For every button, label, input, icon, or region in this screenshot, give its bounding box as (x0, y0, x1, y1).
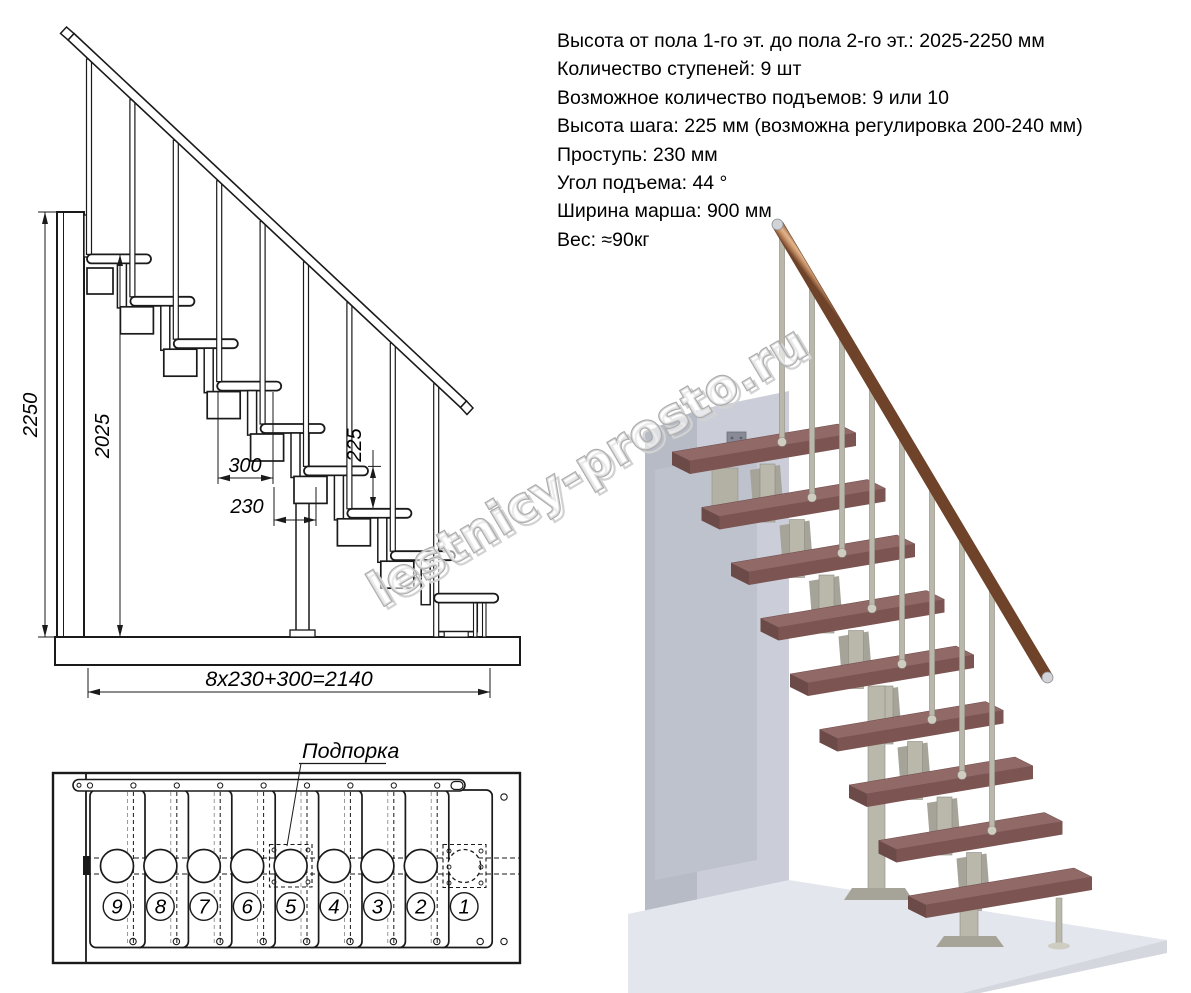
baluster (87, 59, 92, 254)
module-tube (161, 306, 170, 351)
dim-tread-depth: 300 (228, 455, 261, 477)
module-tube (291, 433, 300, 478)
specs-block: Высота от пола 1-го эт. до пола 2-го эт.… (557, 27, 1083, 254)
module-leg (474, 602, 478, 637)
render-bottom-post (960, 908, 978, 938)
spec-line-height-range: Высота от пола 1-го эт. до пола 2-го эт.… (557, 27, 1083, 55)
render-baluster (899, 434, 904, 668)
plan-step-number: 5 (285, 896, 297, 919)
tread (434, 594, 498, 603)
spec-line-rise-count: Возможное количество подъемов: 9 или 10 (557, 84, 1083, 112)
baluster (304, 262, 309, 466)
render-baluster (869, 383, 874, 613)
spec-line-step-count: Количество ступеней: 9 шт (557, 55, 1083, 83)
plan-left-notch (83, 856, 90, 875)
baluster (173, 140, 178, 339)
dim-total-height: 2250 (20, 393, 42, 439)
tread (304, 466, 368, 475)
baluster (130, 100, 135, 297)
tread (130, 297, 194, 306)
plan-handrail-bar (73, 780, 465, 792)
spec-line-weight: Вес: ≈90кг (557, 226, 1083, 254)
spec-line-width: Ширина марша: 900 мм (557, 197, 1083, 225)
dim-step-rise: 225 (344, 427, 366, 462)
render-baluster-joint (898, 660, 907, 669)
render-bottom-base (936, 936, 1004, 947)
render-baluster-joint (808, 493, 817, 502)
module-tube (204, 348, 213, 393)
render-baluster (929, 486, 934, 724)
render-end-rod (1056, 898, 1062, 946)
render-baluster-joint (988, 826, 997, 835)
tread (217, 382, 281, 391)
render-baluster-joint (838, 549, 847, 558)
render-baluster (839, 331, 844, 557)
render-baluster-joint (778, 438, 787, 447)
plan-post-circle (274, 850, 307, 883)
staircase-spec-sheet: Высота от пола 1-го эт. до пола 2-го эт.… (0, 0, 1191, 993)
plan-step-number: 1 (458, 896, 469, 919)
module-tube (248, 391, 257, 436)
upper-floor-wall (57, 212, 84, 637)
dim-step-run: 230 (229, 496, 263, 518)
plan-post-circle (231, 850, 264, 883)
render-baluster-joint (868, 604, 877, 613)
render-baluster (809, 280, 814, 502)
plan-step-number: 4 (328, 896, 339, 919)
elevation-handrail (68, 34, 467, 408)
render-handrail-end-cap (1042, 672, 1053, 683)
plan-view: 9 8 7 6 5 4 3 2 1 Подпорка (53, 739, 520, 963)
plan-handrail-end-cap (451, 782, 463, 790)
tread (261, 424, 325, 433)
module-base (444, 632, 468, 638)
plan-step-number: 3 (372, 896, 384, 919)
plan-step-number: 6 (241, 896, 253, 919)
module-bracket (207, 392, 240, 419)
baluster (260, 222, 265, 425)
elevation-view: 2250 2025 300 230 225 8x230+300=2140 (20, 27, 520, 698)
baluster (347, 303, 352, 509)
plan-post-circle (187, 850, 220, 883)
module-tube (334, 475, 343, 520)
render-baluster-joint (958, 771, 967, 780)
plan-post-circle (144, 850, 177, 883)
plan-post-circle (318, 850, 351, 883)
tread (347, 509, 411, 518)
plan-step-number: 2 (414, 896, 427, 919)
plan-post-circle (448, 850, 481, 883)
spec-line-step-height: Высота шага: 225 мм (возможна регулировк… (557, 112, 1083, 140)
plan-post-circle (361, 850, 394, 883)
dim-upper-height: 2025 (92, 413, 114, 459)
module-tube (117, 263, 126, 308)
spec-line-angle: Угол подъема: 44 ° (557, 169, 1083, 197)
dim-total-run: 8x230+300=2140 (205, 667, 372, 691)
render-baluster (989, 589, 994, 834)
tread (174, 339, 238, 348)
plan-step-number: 8 (155, 896, 167, 919)
baluster (217, 181, 222, 382)
plan-step-number: 7 (198, 896, 211, 919)
support-base (290, 630, 315, 637)
module-bracket (294, 476, 327, 503)
module-bracket (87, 268, 113, 294)
plan-post-circle (404, 850, 437, 883)
render-support-base (844, 888, 913, 900)
module-bracket (164, 349, 197, 376)
module-bracket (337, 519, 370, 546)
render-baluster-joint (928, 715, 937, 724)
plan-steps-group (86, 790, 519, 948)
plan-step-number: 9 (111, 896, 122, 919)
module-bracket (438, 603, 477, 632)
render-3d-view (628, 219, 1167, 993)
baluster (390, 343, 395, 551)
module-bracket (120, 307, 153, 334)
support-callout-label: Подпорка (302, 739, 399, 763)
render-baluster (959, 538, 964, 780)
floor-slab (55, 637, 520, 665)
plan-post-circle (101, 850, 134, 883)
module-leg (483, 602, 487, 637)
spec-line-tread: Проступь: 230 мм (557, 141, 1083, 169)
